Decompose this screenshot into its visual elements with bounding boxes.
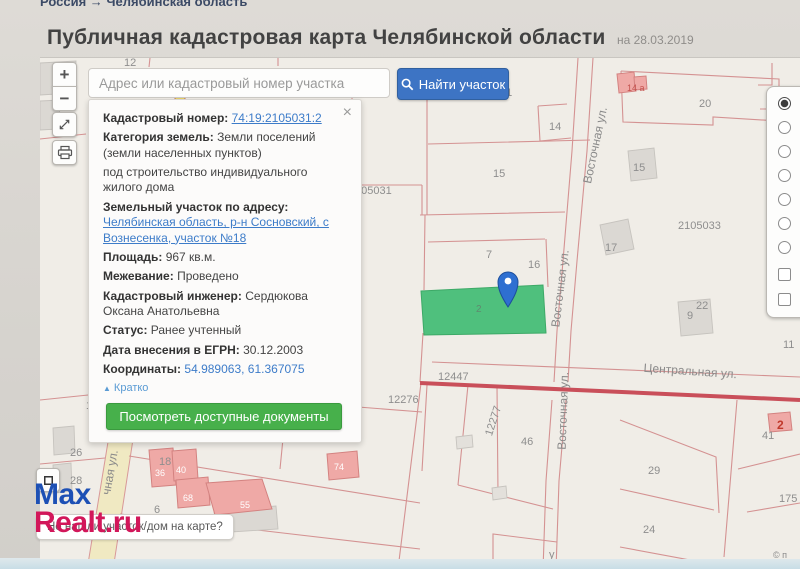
egrn-date-label: Дата внесения в ЕГРН: bbox=[103, 343, 240, 357]
building-number: 36 bbox=[155, 468, 165, 478]
zoom-out-button[interactable]: − bbox=[52, 86, 77, 111]
address-label: Земельный участок по адресу: bbox=[103, 200, 288, 214]
map-label: 12447 bbox=[438, 371, 469, 383]
zoom-in-button[interactable]: + bbox=[52, 62, 77, 87]
map-label: 20 bbox=[699, 98, 711, 110]
cadastral-map-page: Россия → Челябинская область Публичная к… bbox=[0, 0, 800, 569]
collapse-label: Кратко bbox=[114, 382, 149, 394]
close-icon[interactable]: × bbox=[343, 105, 352, 121]
map-label: 24 bbox=[643, 524, 655, 536]
map-label: 16 bbox=[528, 259, 540, 271]
land-category-label: Категория земель: bbox=[103, 130, 214, 144]
map-label: 41 bbox=[762, 430, 774, 442]
map-label: 12276 bbox=[388, 394, 419, 406]
map-label: 11 bbox=[783, 339, 794, 351]
house-number-label: 2 bbox=[777, 418, 784, 432]
map-label: 18 bbox=[159, 456, 171, 468]
photo-bottom-edge bbox=[0, 558, 800, 569]
coordinates-label: Координаты: bbox=[103, 362, 181, 376]
parcel-info-popup: × Кадастровый номер: 74:19:2105031:2 Кат… bbox=[88, 99, 362, 443]
map-label: 15 bbox=[633, 162, 645, 174]
street-label: Восточная ул. bbox=[555, 372, 572, 450]
map-label: 175 bbox=[779, 493, 797, 505]
map-label: 15 bbox=[493, 168, 505, 180]
find-parcel-button[interactable]: Найти участок bbox=[397, 68, 509, 100]
engineer-label: Кадастровый инженер: bbox=[103, 289, 242, 303]
find-parcel-tooltip: Не нашли участок/дом на карте? bbox=[36, 514, 234, 540]
search-input[interactable] bbox=[88, 68, 390, 98]
coordinates-value[interactable]: 54.989063, 61.367075 bbox=[184, 362, 304, 376]
map-label: 28 bbox=[70, 475, 82, 487]
map-label: 46 bbox=[521, 436, 533, 448]
map-label: 7 bbox=[486, 249, 492, 261]
map-label: 26 bbox=[70, 447, 82, 459]
map-date-note: на 28.03.2019 bbox=[617, 33, 694, 47]
area-select-button[interactable] bbox=[36, 468, 60, 492]
view-documents-button[interactable]: Посмотреть доступные документы bbox=[106, 403, 342, 430]
map-label: 14 bbox=[549, 121, 561, 133]
building-number: 40 bbox=[176, 465, 186, 475]
survey-value: Проведено bbox=[177, 269, 239, 283]
layer-radio[interactable] bbox=[778, 217, 791, 230]
layer-radio[interactable] bbox=[778, 121, 791, 134]
printer-icon bbox=[57, 145, 73, 160]
map-label: 9 bbox=[687, 310, 693, 322]
layer-radio[interactable] bbox=[778, 145, 791, 158]
map-label: 29 bbox=[648, 465, 660, 477]
map-label: 22 bbox=[696, 300, 708, 312]
status-value: Ранее учтенный bbox=[151, 323, 241, 337]
layer-radio[interactable] bbox=[778, 97, 791, 110]
layer-radio[interactable] bbox=[778, 193, 791, 206]
page-title: Публичная кадастровая карта Челябинской … bbox=[47, 26, 606, 49]
egrn-date-value: 30.12.2003 bbox=[243, 343, 303, 357]
selected-parcel[interactable] bbox=[421, 285, 546, 335]
house-number-label: 14 а bbox=[627, 83, 645, 93]
breadcrumb-text[interactable]: Россия → Челябинская область bbox=[40, 0, 247, 9]
square-select-icon bbox=[40, 472, 57, 489]
expand-arrows-icon bbox=[55, 115, 74, 134]
area-label: Площадь: bbox=[103, 250, 162, 264]
fullscreen-button[interactable] bbox=[52, 112, 77, 137]
building-number: 68 bbox=[183, 493, 193, 503]
permitted-use-value: под строительство индивидуального жилого… bbox=[103, 165, 347, 196]
layer-radio[interactable] bbox=[778, 169, 791, 182]
building-number: 55 bbox=[240, 500, 250, 510]
zoom-control: + − bbox=[52, 62, 77, 110]
layer-checkbox[interactable] bbox=[778, 268, 791, 281]
print-button[interactable] bbox=[52, 140, 77, 165]
selected-parcel-number: 2 bbox=[476, 304, 482, 315]
cadastral-number-link[interactable]: 74:19:2105031:2 bbox=[232, 111, 322, 125]
page-header: Публичная кадастровая карта Челябинской … bbox=[47, 26, 694, 50]
search-icon bbox=[401, 78, 414, 91]
breadcrumb: Россия → Челябинская область bbox=[40, 0, 247, 12]
collapse-link[interactable]: ▲Кратко bbox=[103, 381, 347, 395]
cadastral-number-label: Кадастровый номер: bbox=[103, 111, 228, 125]
status-label: Статус: bbox=[103, 323, 147, 337]
triangle-up-icon: ▲ bbox=[103, 384, 111, 393]
find-parcel-label: Найти участок bbox=[419, 77, 505, 92]
survey-label: Межевание: bbox=[103, 269, 174, 283]
layers-panel bbox=[766, 86, 800, 318]
map-label: у bbox=[549, 549, 555, 559]
layer-checkbox[interactable] bbox=[778, 293, 791, 306]
map-label: 17 bbox=[605, 242, 617, 254]
quarter-number-label: 2105033 bbox=[678, 220, 721, 232]
building-number: 74 bbox=[334, 462, 344, 472]
area-value: 967 кв.м. bbox=[166, 250, 216, 264]
layer-radio[interactable] bbox=[778, 241, 791, 254]
address-link[interactable]: Челябинская область, р-н Сосновский, с В… bbox=[103, 215, 329, 244]
copyright-fragment: © п bbox=[773, 550, 787, 559]
